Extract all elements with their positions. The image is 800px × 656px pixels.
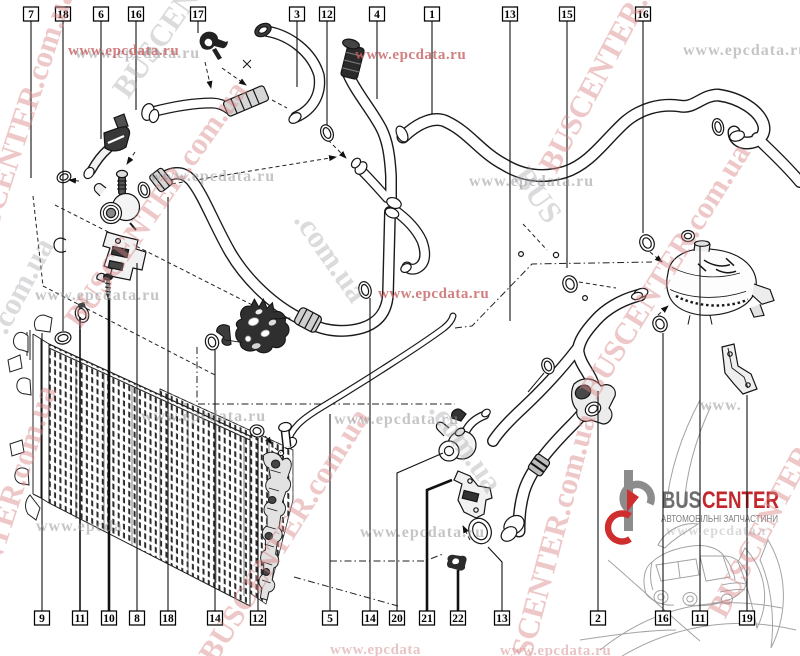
svg-text:www.epcdata.r: www.epcdata.r: [666, 524, 768, 539]
svg-text:.com.ua: .com.ua: [287, 204, 375, 309]
svg-text:www.epcdata.ru: www.epcdata.ru: [141, 408, 266, 425]
svg-text:20: 20: [391, 613, 403, 625]
svg-text:www.epcdata.ru: www.epcdata.ru: [683, 42, 800, 59]
svg-text:www.: www.: [700, 397, 742, 414]
svg-text:7: 7: [28, 9, 34, 21]
svg-text:BUSCENTER.com.ua: BUSCENTER.com.ua: [531, 0, 700, 178]
svg-text:www.epcdata.ru: www.epcdata.ru: [360, 524, 485, 541]
svg-text:13: 13: [496, 613, 508, 625]
svg-text:22: 22: [452, 613, 464, 625]
svg-text:11: 11: [695, 613, 706, 625]
svg-text:www.epcdata.ru: www.epcdata.ru: [150, 168, 275, 185]
svg-text:11: 11: [75, 613, 86, 625]
svg-text:BUS: BUS: [662, 487, 701, 514]
svg-text:14: 14: [364, 613, 376, 625]
svg-text:www.epcdata.ru: www.epcdata.ru: [469, 173, 594, 190]
svg-text:www.epcdata: www.epcdata: [330, 642, 421, 656]
svg-text:1: 1: [429, 9, 435, 21]
svg-text:15: 15: [561, 9, 573, 21]
svg-text:12: 12: [321, 9, 333, 21]
svg-text:19: 19: [741, 613, 753, 625]
svg-text:9: 9: [39, 613, 45, 625]
svg-text:www.epcda: www.epcda: [36, 518, 123, 535]
svg-text:www.epcdata.ru: www.epcdata.ru: [378, 286, 489, 302]
svg-text:5: 5: [327, 613, 333, 625]
svg-text:16: 16: [130, 9, 142, 21]
svg-text:www.epcdata.ru: www.epcdata.ru: [500, 643, 611, 656]
svg-text:3: 3: [294, 9, 300, 21]
svg-text:www.epcdata.ru: www.epcdata.ru: [35, 287, 160, 304]
svg-text:BUSCENTER.com.ua: BUSCENTER.com.ua: [0, 0, 81, 272]
svg-text:21: 21: [421, 613, 433, 625]
svg-text:.com.ua: .com.ua: [0, 231, 61, 339]
svg-text:8: 8: [134, 613, 140, 625]
svg-text:10: 10: [103, 613, 115, 625]
svg-text:18: 18: [162, 613, 174, 625]
svg-text:2: 2: [595, 613, 601, 625]
svg-text:6: 6: [98, 9, 104, 21]
svg-text:16: 16: [657, 613, 669, 625]
svg-text:www.epcdata.ru: www.epcdata.ru: [334, 411, 459, 428]
svg-text:13: 13: [504, 9, 516, 21]
svg-text:4: 4: [374, 9, 380, 21]
svg-text:www.epcdata.ru: www.epcdata.ru: [68, 43, 179, 59]
svg-text:www.epcdata.ru: www.epcdata.ru: [355, 47, 466, 63]
